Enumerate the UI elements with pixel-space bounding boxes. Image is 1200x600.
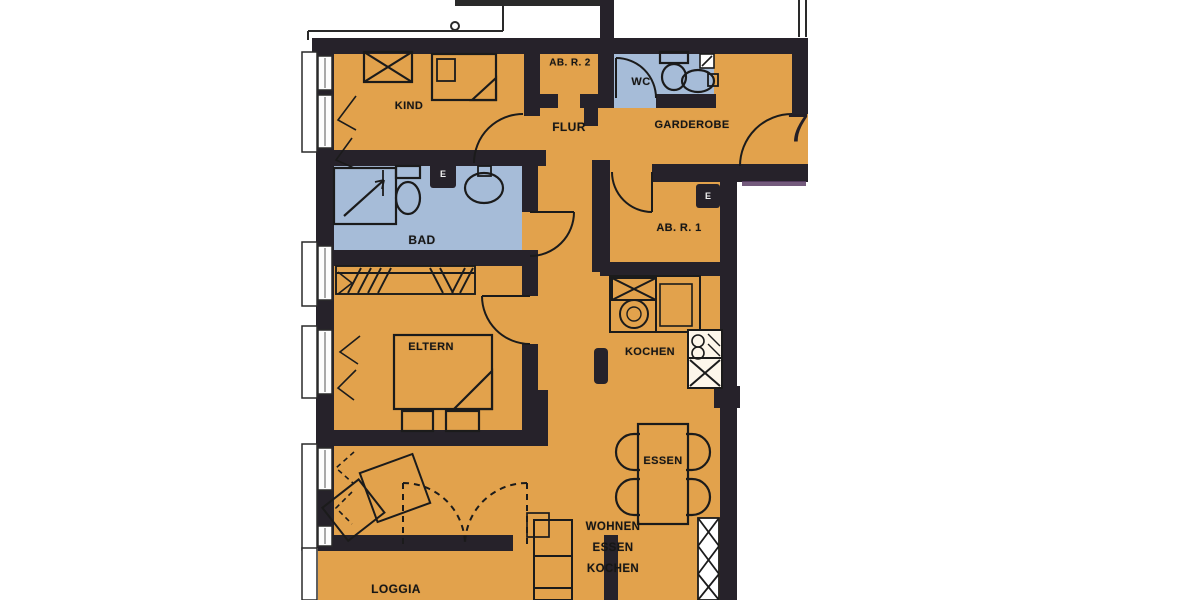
wall-eltern-top	[332, 250, 538, 266]
wall-loggia-top	[318, 535, 513, 551]
room-label-garderobe: GARDEROBE	[654, 119, 729, 131]
wohnen-line: WOHNEN	[586, 521, 641, 533]
electrical-marker-bad: E	[440, 169, 446, 179]
room-label-kochen: KOCHEN	[625, 346, 675, 358]
loggia-thin-wall	[302, 548, 317, 600]
room-label-eltern: ELTERN	[408, 341, 454, 353]
kochen-line: KOCHEN	[587, 563, 639, 575]
survey-point-marker	[451, 22, 459, 30]
wall-eltern-bottom	[318, 430, 548, 446]
room-label-ab-r-1: AB. R. 1	[656, 222, 701, 234]
floorplan-svg	[0, 0, 1200, 600]
floorplan-page: KIND AB. R. 2 WC FLUR GARDEROBE BAD AB. …	[0, 0, 1200, 600]
room-label-ab-r-2: AB. R. 2	[549, 58, 591, 69]
scan-artifact-strip	[742, 181, 806, 186]
window-sill-wohnen	[302, 444, 317, 550]
wall-wc-left	[598, 52, 614, 108]
wc-vent-shaft-icon	[700, 54, 714, 68]
wall-kochen-stub	[594, 348, 608, 384]
wall-abr1-left	[592, 160, 610, 272]
room-label-wc: WC	[631, 76, 650, 88]
wall-kind-right	[524, 52, 540, 116]
window-sill-kind	[302, 52, 317, 152]
floor-upper	[318, 53, 792, 165]
room-label-loggia: LOGGIA	[371, 582, 421, 596]
radiator-icon	[698, 518, 719, 600]
window-sill-eltern	[302, 326, 317, 398]
wall-abr2-stub-left	[540, 94, 558, 108]
room-label-wohnen-essen-kochen: WOHNEN ESSEN KOCHEN	[586, 521, 641, 575]
wall-corridor-a	[522, 150, 538, 212]
essen-line: ESSEN	[592, 542, 633, 554]
room-label-essen: ESSEN	[643, 455, 682, 467]
wall-joint	[714, 386, 740, 408]
wall-wc-bottom	[656, 94, 716, 108]
wall-entry-bottom	[652, 164, 808, 182]
apartment-number: 7	[787, 107, 809, 152]
kitchen-counter-icon	[688, 330, 722, 388]
wall-right-upper	[792, 53, 808, 114]
room-label-flur: FLUR	[552, 120, 586, 134]
room-label-kind: KIND	[395, 100, 424, 112]
room-label-bad: BAD	[408, 233, 435, 247]
window-sill-bad	[302, 242, 317, 306]
wall-kochen-top	[600, 262, 722, 276]
electrical-marker-abr1: E	[705, 191, 711, 201]
outside-context-lines	[308, 0, 806, 40]
